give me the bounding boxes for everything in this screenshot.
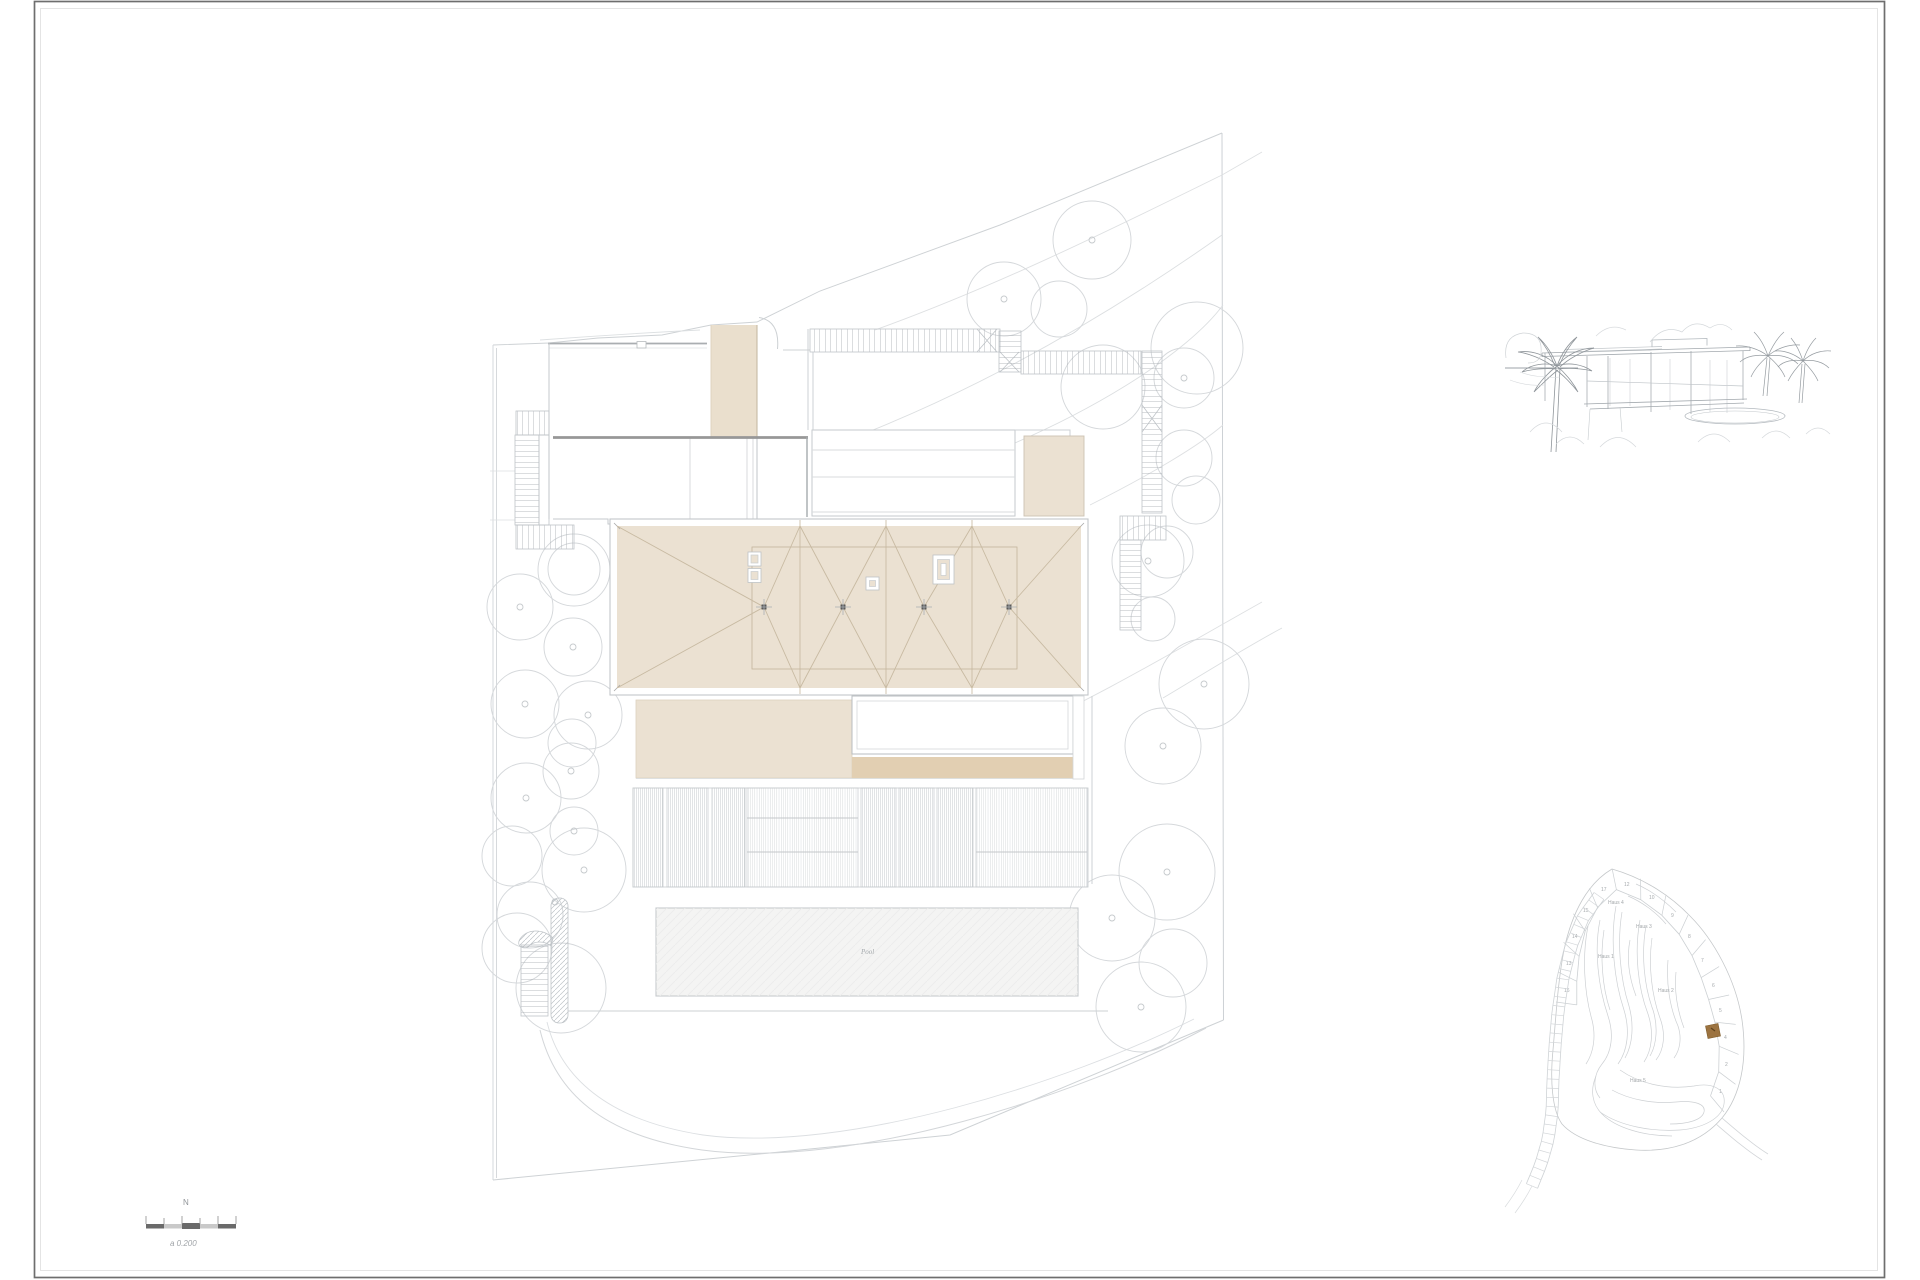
- svg-text:8: 8: [1688, 934, 1691, 940]
- svg-text:a 0.200: a 0.200: [170, 1239, 197, 1248]
- svg-text:5: 5: [1719, 1008, 1722, 1014]
- svg-text:Haus 3: Haus 3: [1636, 924, 1652, 930]
- svg-text:17: 17: [1601, 887, 1607, 893]
- svg-text:Pool: Pool: [860, 948, 874, 956]
- svg-text:2: 2: [1725, 1062, 1728, 1068]
- svg-text:N: N: [183, 1198, 189, 1207]
- svg-text:Haus 2: Haus 2: [1658, 988, 1674, 994]
- svg-text:10: 10: [1649, 895, 1655, 901]
- svg-text:6: 6: [1712, 983, 1715, 989]
- svg-text:12: 12: [1624, 882, 1630, 888]
- svg-text:9: 9: [1671, 913, 1674, 919]
- svg-text:Haus 4: Haus 4: [1608, 900, 1624, 906]
- svg-text:Haus 1: Haus 1: [1598, 954, 1614, 960]
- svg-text:7: 7: [1701, 958, 1704, 964]
- svg-text:4: 4: [1724, 1035, 1727, 1041]
- svg-text:Haus 5: Haus 5: [1630, 1078, 1646, 1084]
